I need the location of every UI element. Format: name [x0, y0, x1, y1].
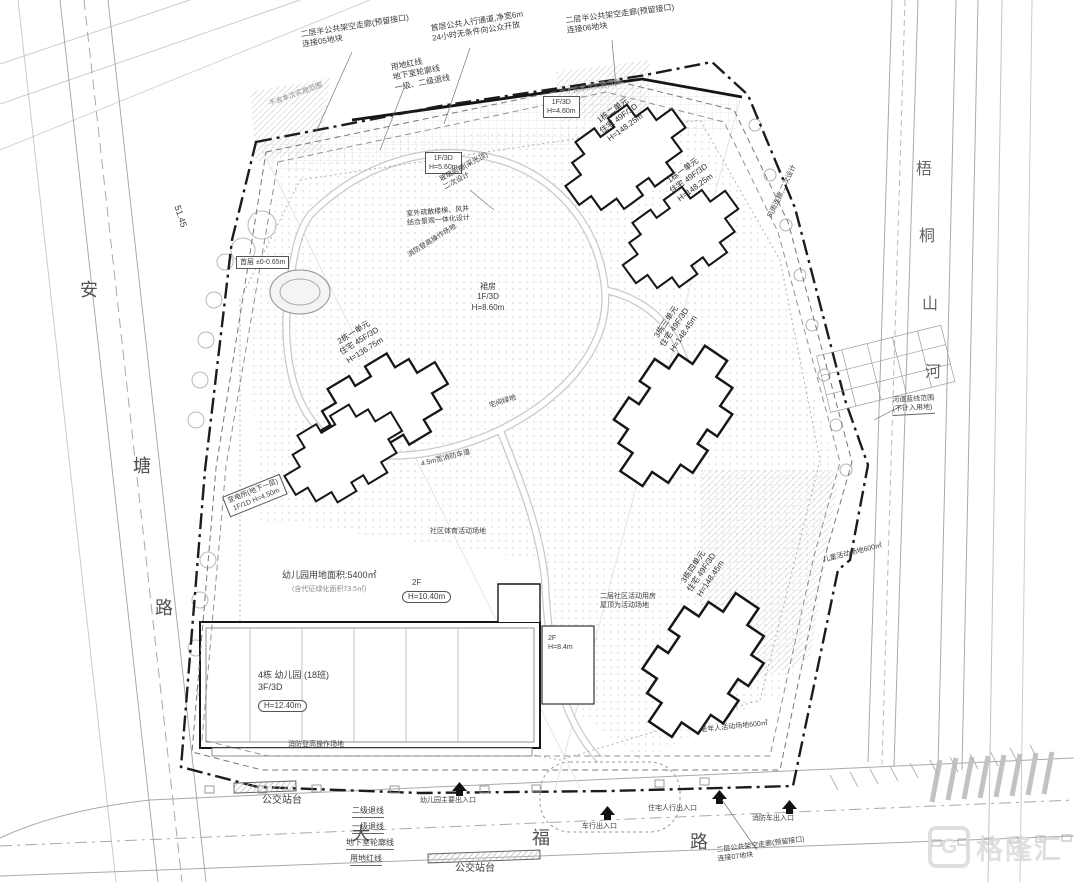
label-river-blueline: 河道蓝线范围 (不计入用地) — [892, 394, 935, 416]
legend-basement-outline: 地下室轮廓线 — [346, 838, 394, 850]
legend-setback-1: 一级退线 — [352, 822, 384, 834]
label-sports-ground: 社区体育活动场地 — [430, 527, 486, 536]
label-annex-2f-height: H=10.40m — [402, 591, 451, 603]
label-kindergarten-entrance: 幼儿园主要出入口 — [420, 796, 476, 805]
site-plan-canvas — [0, 0, 1074, 882]
building-label-kindergarten: 4栋 幼儿园 (18班) 3F/3D — [258, 670, 329, 693]
fire-entrance-icon — [782, 800, 797, 814]
label-fire-pad-2: 消防登高操作场地 — [288, 740, 344, 749]
vehicle-entrance-icon — [600, 806, 615, 820]
site-plan: 安 塘 路 大 福 路 梧 桐 山 河 二层半公共架空走廊(预留接口) 连接05… — [0, 0, 1074, 882]
pedestrian-entrance-icon — [712, 790, 727, 804]
label-kindergarten-area: 幼儿园用地面积:5400㎡ — [282, 570, 377, 582]
kindergarten-entrance-icon — [452, 782, 467, 796]
label-bus-platform-1: 公交站台 — [262, 794, 302, 807]
river-name-4: 河 — [925, 358, 941, 382]
label-first-floor-level: 首层 ±0-0.65m — [236, 256, 289, 269]
river-name-1: 梧 — [916, 155, 932, 179]
road-name-dafu-2: 福 — [532, 824, 550, 850]
label-kindergarten-area-sub: (含代征绿化面积73.5㎡) — [292, 585, 366, 594]
label-pedestrian-entrance: 住宅人行出入口 — [648, 804, 697, 813]
label-box-1f3d-h460: 1F/3D H=4.60m — [543, 96, 580, 118]
road-name-antang-3: 路 — [155, 594, 173, 620]
legend-site-redline: 用地红线 — [350, 854, 382, 866]
label-kindergarten-height: H=12.40m — [258, 700, 307, 712]
label-annex-2f: 2F — [412, 578, 421, 588]
label-bus-platform-2: 公交站台 — [455, 862, 495, 875]
label-fire-entrance: 消防车出入口 — [752, 814, 794, 823]
building-label-podium: 裙房 1F/3D H=8.60m — [462, 282, 514, 313]
watermark-brand: 格隆汇 — [976, 828, 1063, 867]
road-name-dafu-3: 路 — [690, 828, 708, 854]
watermark-logo: G — [928, 826, 970, 868]
watermark: G 格隆汇 — [928, 826, 1063, 868]
road-name-antang-1: 安 — [80, 276, 98, 302]
label-community-room: 二层社区活动用房 屋顶为活动场地 — [600, 592, 656, 610]
river-name-2: 桐 — [919, 222, 935, 246]
label-block-2f: 2F H=8.4m — [548, 634, 573, 652]
label-vehicle-entrance: 车行出入口 — [582, 822, 617, 831]
crosswalk-marks — [932, 752, 1052, 802]
road-name-antang-2: 塘 — [133, 452, 151, 478]
legend-setback-2: 二级退线 — [352, 806, 384, 818]
river-name-3: 山 — [922, 290, 938, 314]
